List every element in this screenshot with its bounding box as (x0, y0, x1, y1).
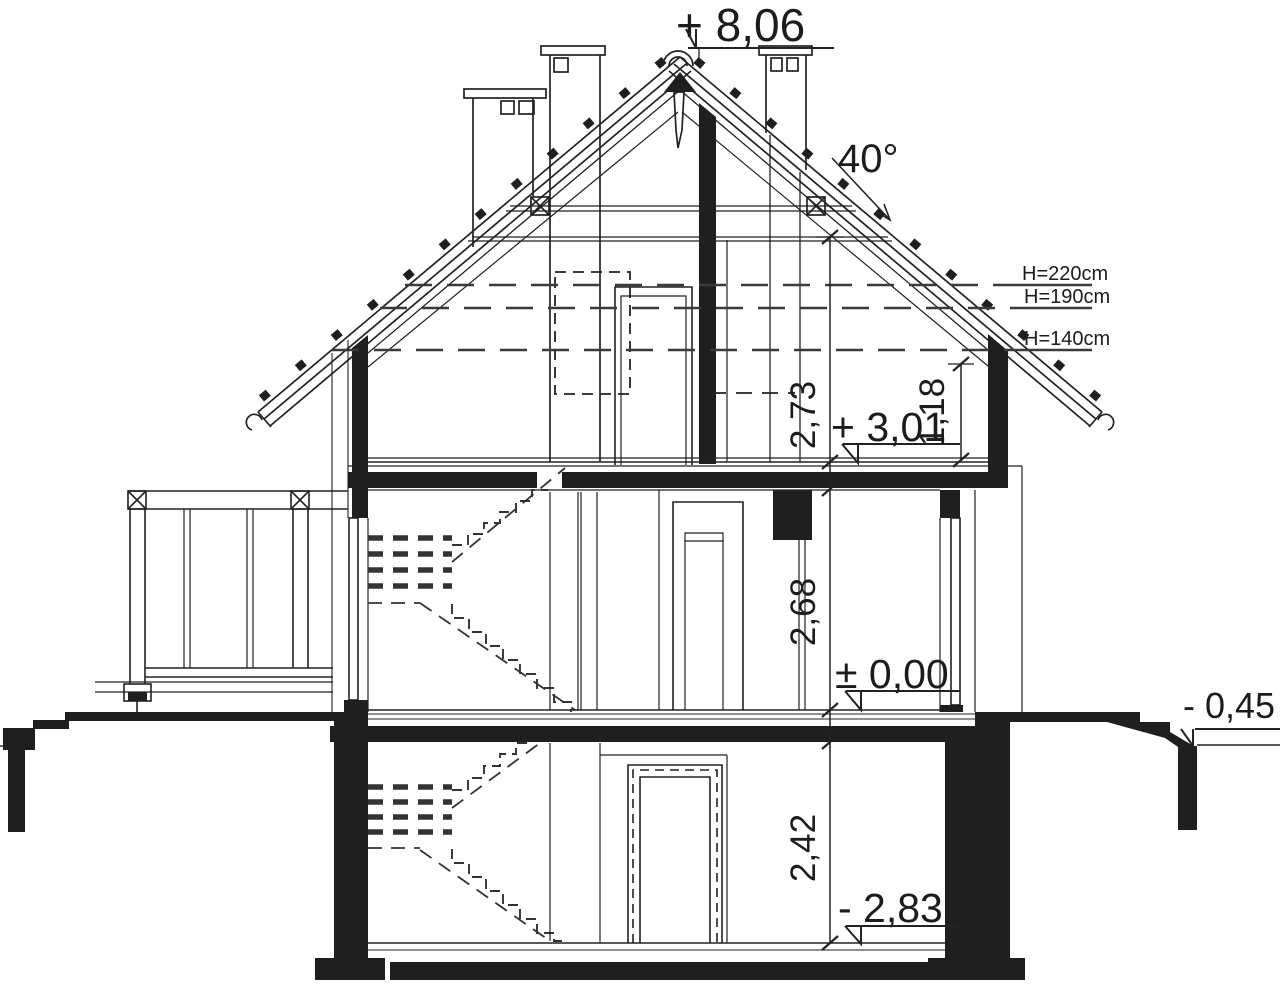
attic-level-label: + 3,01 (831, 404, 946, 450)
footing-right (928, 958, 1025, 980)
porch-post-anchor-right (291, 491, 309, 509)
headroom-190-label: H=190cm (1024, 286, 1110, 308)
basement-wall-left (334, 712, 368, 958)
level-marker-terrain (1181, 729, 1280, 746)
basement-height-dim: 2,42 (784, 814, 823, 882)
gutter-hook-left (246, 414, 262, 430)
attic-wall-left (352, 335, 368, 518)
attic-knee-wall-right (988, 334, 1008, 483)
basement-slab (368, 943, 945, 980)
porch (95, 491, 348, 712)
battens-right (696, 60, 1104, 403)
stairwell-walls (550, 492, 597, 710)
attic-door (615, 287, 692, 465)
staircase-basement (368, 743, 566, 941)
headroom-140-label: H=140cm (1024, 328, 1110, 350)
chimney-left (464, 89, 546, 247)
roof-angle-label: 40° (838, 137, 899, 181)
basement (315, 712, 1025, 980)
house-cross-section-drawing: + 8,06 40° H=220cm H=190cm H=140cm 2,73 … (0, 0, 1280, 988)
footing-left (315, 958, 385, 980)
ridge-level-label: + 8,06 (676, 0, 805, 51)
basement-door (600, 743, 727, 943)
roof (246, 51, 1113, 430)
cross-section-svg: + 8,06 40° H=220cm H=190cm H=140cm 2,73 … (0, 0, 1280, 988)
attic-height-dim: 2,73 (784, 381, 823, 449)
porch-post-anchor-left (128, 491, 146, 509)
gutter-hook-right (1098, 414, 1114, 430)
terrain-left (3, 712, 348, 832)
ground-level-label: ± 0,00 (835, 651, 949, 697)
ground-slab (330, 710, 1010, 742)
battens-left (256, 60, 664, 403)
chimneys (464, 46, 812, 462)
ground-height-dim: 2,68 (784, 578, 823, 646)
staircase-ground (368, 468, 575, 712)
terrain-level-label: - 0,45 (1183, 685, 1275, 726)
basement-level-label: - 2,83 (838, 885, 943, 931)
ground-floor-door (659, 490, 743, 710)
porch-post-footing (124, 684, 151, 712)
attic-center-wall (699, 103, 716, 464)
headroom-220-label: H=220cm (1022, 263, 1108, 285)
chimney-middle (541, 46, 605, 462)
attic-dashed-opening (555, 272, 630, 394)
